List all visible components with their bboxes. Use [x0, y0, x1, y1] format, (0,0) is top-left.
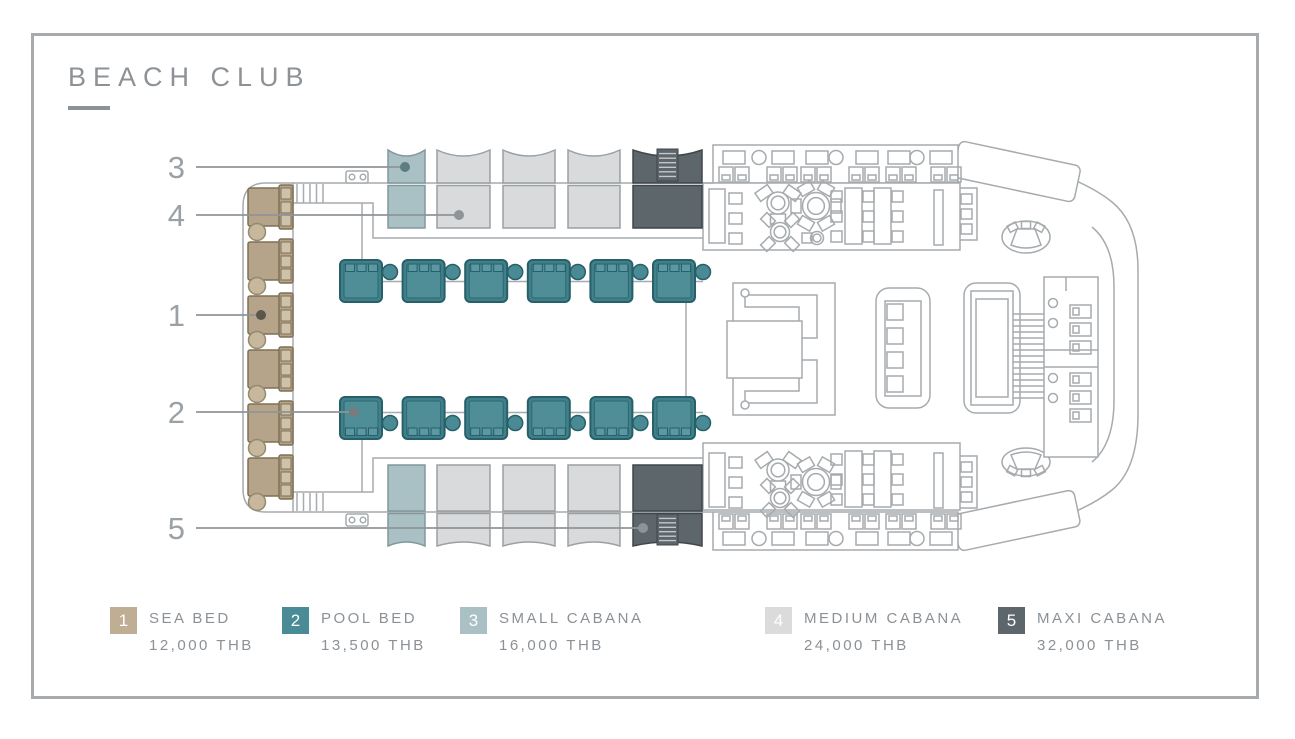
- pillow: [596, 264, 605, 272]
- side-table: [249, 332, 266, 349]
- dj-booth-shape: [1049, 374, 1058, 383]
- pillow: [659, 264, 668, 272]
- round-table-shape: [803, 469, 830, 496]
- callout-number: 3: [168, 150, 186, 185]
- medium-cabana-shape: [437, 150, 490, 183]
- callout-dot: [349, 407, 359, 417]
- cleat-bottom: [346, 514, 368, 526]
- medium-cabana-shape: [503, 514, 555, 547]
- pillow: [545, 428, 554, 436]
- stage-shape: [741, 401, 749, 409]
- pillow: [533, 428, 542, 436]
- callout-number: 4: [168, 198, 186, 233]
- sea-bed: [248, 401, 293, 457]
- pillow: [482, 264, 491, 272]
- small-cabana-shape: [388, 186, 425, 229]
- pool-bed: [653, 397, 711, 439]
- sea-bed: [248, 293, 293, 349]
- legend-price: 13,500 THB: [321, 637, 426, 654]
- callout-small-cabana: 3: [168, 150, 410, 185]
- medium-cabana: [503, 465, 555, 546]
- deck-edge: [243, 183, 713, 512]
- side-table: [570, 265, 585, 280]
- pillow: [471, 264, 480, 272]
- legend-number: 3: [469, 611, 478, 631]
- pillow: [494, 428, 503, 436]
- side-table: [249, 386, 266, 403]
- pool-bed: [340, 397, 398, 439]
- stairs-bottom: [297, 493, 323, 511]
- pillow: [607, 264, 616, 272]
- small-cabana: [388, 150, 425, 228]
- maxi-cabana-shape: [633, 186, 702, 229]
- callout-number: 2: [168, 395, 186, 430]
- pool-bed: [465, 397, 523, 439]
- pillow: [281, 404, 291, 415]
- side-table: [445, 265, 460, 280]
- pillow: [420, 264, 429, 272]
- medium-cabana-shape: [437, 186, 490, 229]
- pillow: [281, 364, 291, 375]
- pillow: [369, 428, 378, 436]
- legend-item-pool-bed: 2 POOL BED 13,500 THB: [282, 607, 426, 654]
- dj-booth-shape: [1049, 394, 1058, 403]
- beach-club-map: BEACH CLUB: [0, 0, 1295, 739]
- medium-cabana-shape: [568, 514, 620, 547]
- pillow: [281, 310, 291, 321]
- callout-number: 1: [168, 298, 186, 333]
- pillow: [619, 264, 628, 272]
- pillow: [619, 428, 628, 436]
- side-table: [696, 265, 711, 280]
- round-table-shape: [771, 489, 790, 508]
- medium-cabana-shape: [568, 186, 620, 229]
- ladder: [657, 514, 678, 545]
- pool-bed: [403, 397, 461, 439]
- legend-swatch-medium-cabana: 4: [765, 607, 792, 634]
- pillow: [670, 264, 679, 272]
- legend-label: MAXI CABANA: [1037, 607, 1167, 627]
- legend-number: 5: [1007, 611, 1016, 631]
- pillow: [369, 264, 378, 272]
- pillow: [346, 264, 355, 272]
- pillow: [607, 428, 616, 436]
- legend-label: MEDIUM CABANA: [804, 607, 963, 627]
- callout-dot: [454, 210, 464, 220]
- dj-booth-shape: [1049, 319, 1058, 328]
- round-table-shape: [767, 192, 789, 214]
- pillow: [281, 377, 291, 388]
- medium-cabana-shape: [503, 186, 555, 229]
- sea-bed: [248, 185, 293, 241]
- medium-cabana: [503, 150, 555, 228]
- callout-dot: [256, 310, 266, 320]
- pillow: [494, 264, 503, 272]
- pillow: [281, 418, 291, 429]
- ladder: [657, 149, 678, 181]
- medium-cabana-shape: [437, 514, 490, 547]
- side-table: [249, 440, 266, 457]
- medium-cabana-shape: [568, 465, 620, 511]
- callout-number: 5: [168, 511, 186, 546]
- pillow: [281, 242, 291, 253]
- pillow: [596, 428, 605, 436]
- side-table: [249, 224, 266, 241]
- pillow: [281, 431, 291, 442]
- stairs-top: [297, 184, 323, 203]
- round-table-shape: [803, 193, 830, 220]
- legend-swatch-sea-bed: 1: [110, 607, 137, 634]
- side-table: [508, 416, 523, 431]
- legend-label: POOL BED: [321, 607, 426, 627]
- jacuzzi-bottom: [1002, 448, 1050, 477]
- pillow: [431, 264, 440, 272]
- dj-booth-shape: [1049, 299, 1058, 308]
- side-table: [633, 416, 648, 431]
- pillow: [556, 264, 565, 272]
- legend-swatch-maxi-cabana: 5: [998, 607, 1025, 634]
- side-table: [383, 265, 398, 280]
- medium-cabana-shape: [437, 465, 490, 511]
- legend-number: 2: [291, 611, 300, 631]
- sea-bed: [248, 347, 293, 403]
- side-table: [249, 278, 266, 295]
- pillow: [281, 215, 291, 226]
- pillow: [281, 269, 291, 280]
- side-table: [249, 494, 266, 511]
- side-table: [445, 416, 460, 431]
- medium-cabana-shape: [503, 465, 555, 511]
- pillow: [281, 202, 291, 213]
- callout-dot: [400, 162, 410, 172]
- pillow: [281, 296, 291, 307]
- legend-number: 4: [774, 611, 783, 631]
- side-table: [633, 265, 648, 280]
- pillow: [281, 485, 291, 496]
- legend-price: 12,000 THB: [149, 637, 254, 654]
- pillow: [659, 428, 668, 436]
- legend-swatch-small-cabana: 3: [460, 607, 487, 634]
- legend-label: SEA BED: [149, 607, 254, 627]
- legend-price: 32,000 THB: [1037, 637, 1167, 654]
- pillow: [408, 264, 417, 272]
- pillow: [281, 323, 291, 334]
- pillow: [482, 428, 491, 436]
- dj-booth-shape: [964, 283, 1020, 413]
- medium-cabana: [568, 150, 620, 228]
- pillow: [408, 428, 417, 436]
- round-table-shape: [767, 459, 789, 481]
- pillow: [281, 472, 291, 483]
- side-table: [508, 265, 523, 280]
- pillow: [357, 428, 366, 436]
- pillow: [670, 428, 679, 436]
- dj-booth: [964, 277, 1098, 457]
- legend-item-maxi-cabana: 5 MAXI CABANA 32,000 THB: [998, 607, 1167, 654]
- side-table: [696, 416, 711, 431]
- jacuzzi-top: [1002, 221, 1050, 253]
- pillow: [682, 428, 691, 436]
- pillow: [357, 264, 366, 272]
- pillow: [471, 428, 480, 436]
- side-table: [383, 416, 398, 431]
- small-cabana: [388, 465, 425, 546]
- medium-cabana-shape: [503, 150, 555, 183]
- pillow: [431, 428, 440, 436]
- legend-item-small-cabana: 3 SMALL CABANA 16,000 THB: [460, 607, 644, 654]
- bar: [876, 288, 930, 408]
- small-cabana-shape: [388, 514, 425, 547]
- sea-bed: [248, 239, 293, 295]
- pillow: [281, 458, 291, 469]
- pillow: [281, 256, 291, 267]
- pillow: [545, 264, 554, 272]
- medium-cabana: [568, 465, 620, 546]
- legend-label: SMALL CABANA: [499, 607, 644, 627]
- cleat-top: [346, 171, 368, 183]
- round-table-shape: [771, 223, 790, 242]
- medium-cabana: [437, 465, 490, 546]
- stage: [727, 283, 835, 415]
- medium-cabana-shape: [568, 150, 620, 183]
- small-cabana-shape: [388, 465, 425, 511]
- stage-shape: [727, 321, 802, 378]
- legend-price: 24,000 THB: [804, 637, 963, 654]
- maxi-cabana-shape: [633, 465, 702, 511]
- pillow: [281, 350, 291, 361]
- legend-number: 1: [119, 611, 128, 631]
- legend-item-medium-cabana: 4 MEDIUM CABANA 24,000 THB: [765, 607, 963, 654]
- legend-item-sea-bed: 1 SEA BED 12,000 THB: [110, 607, 254, 654]
- legend-price: 16,000 THB: [499, 637, 644, 654]
- pillow: [420, 428, 429, 436]
- callout-dot: [638, 523, 648, 533]
- legend-swatch-pool-bed: 2: [282, 607, 309, 634]
- pillow: [346, 428, 355, 436]
- stage-shape: [741, 289, 749, 297]
- pool-bed: [590, 397, 648, 439]
- pillow: [556, 428, 565, 436]
- sea-bed: [248, 455, 293, 511]
- pool-bed: [528, 397, 586, 439]
- pillow: [281, 188, 291, 199]
- pillow: [533, 264, 542, 272]
- side-table: [570, 416, 585, 431]
- pillow: [682, 264, 691, 272]
